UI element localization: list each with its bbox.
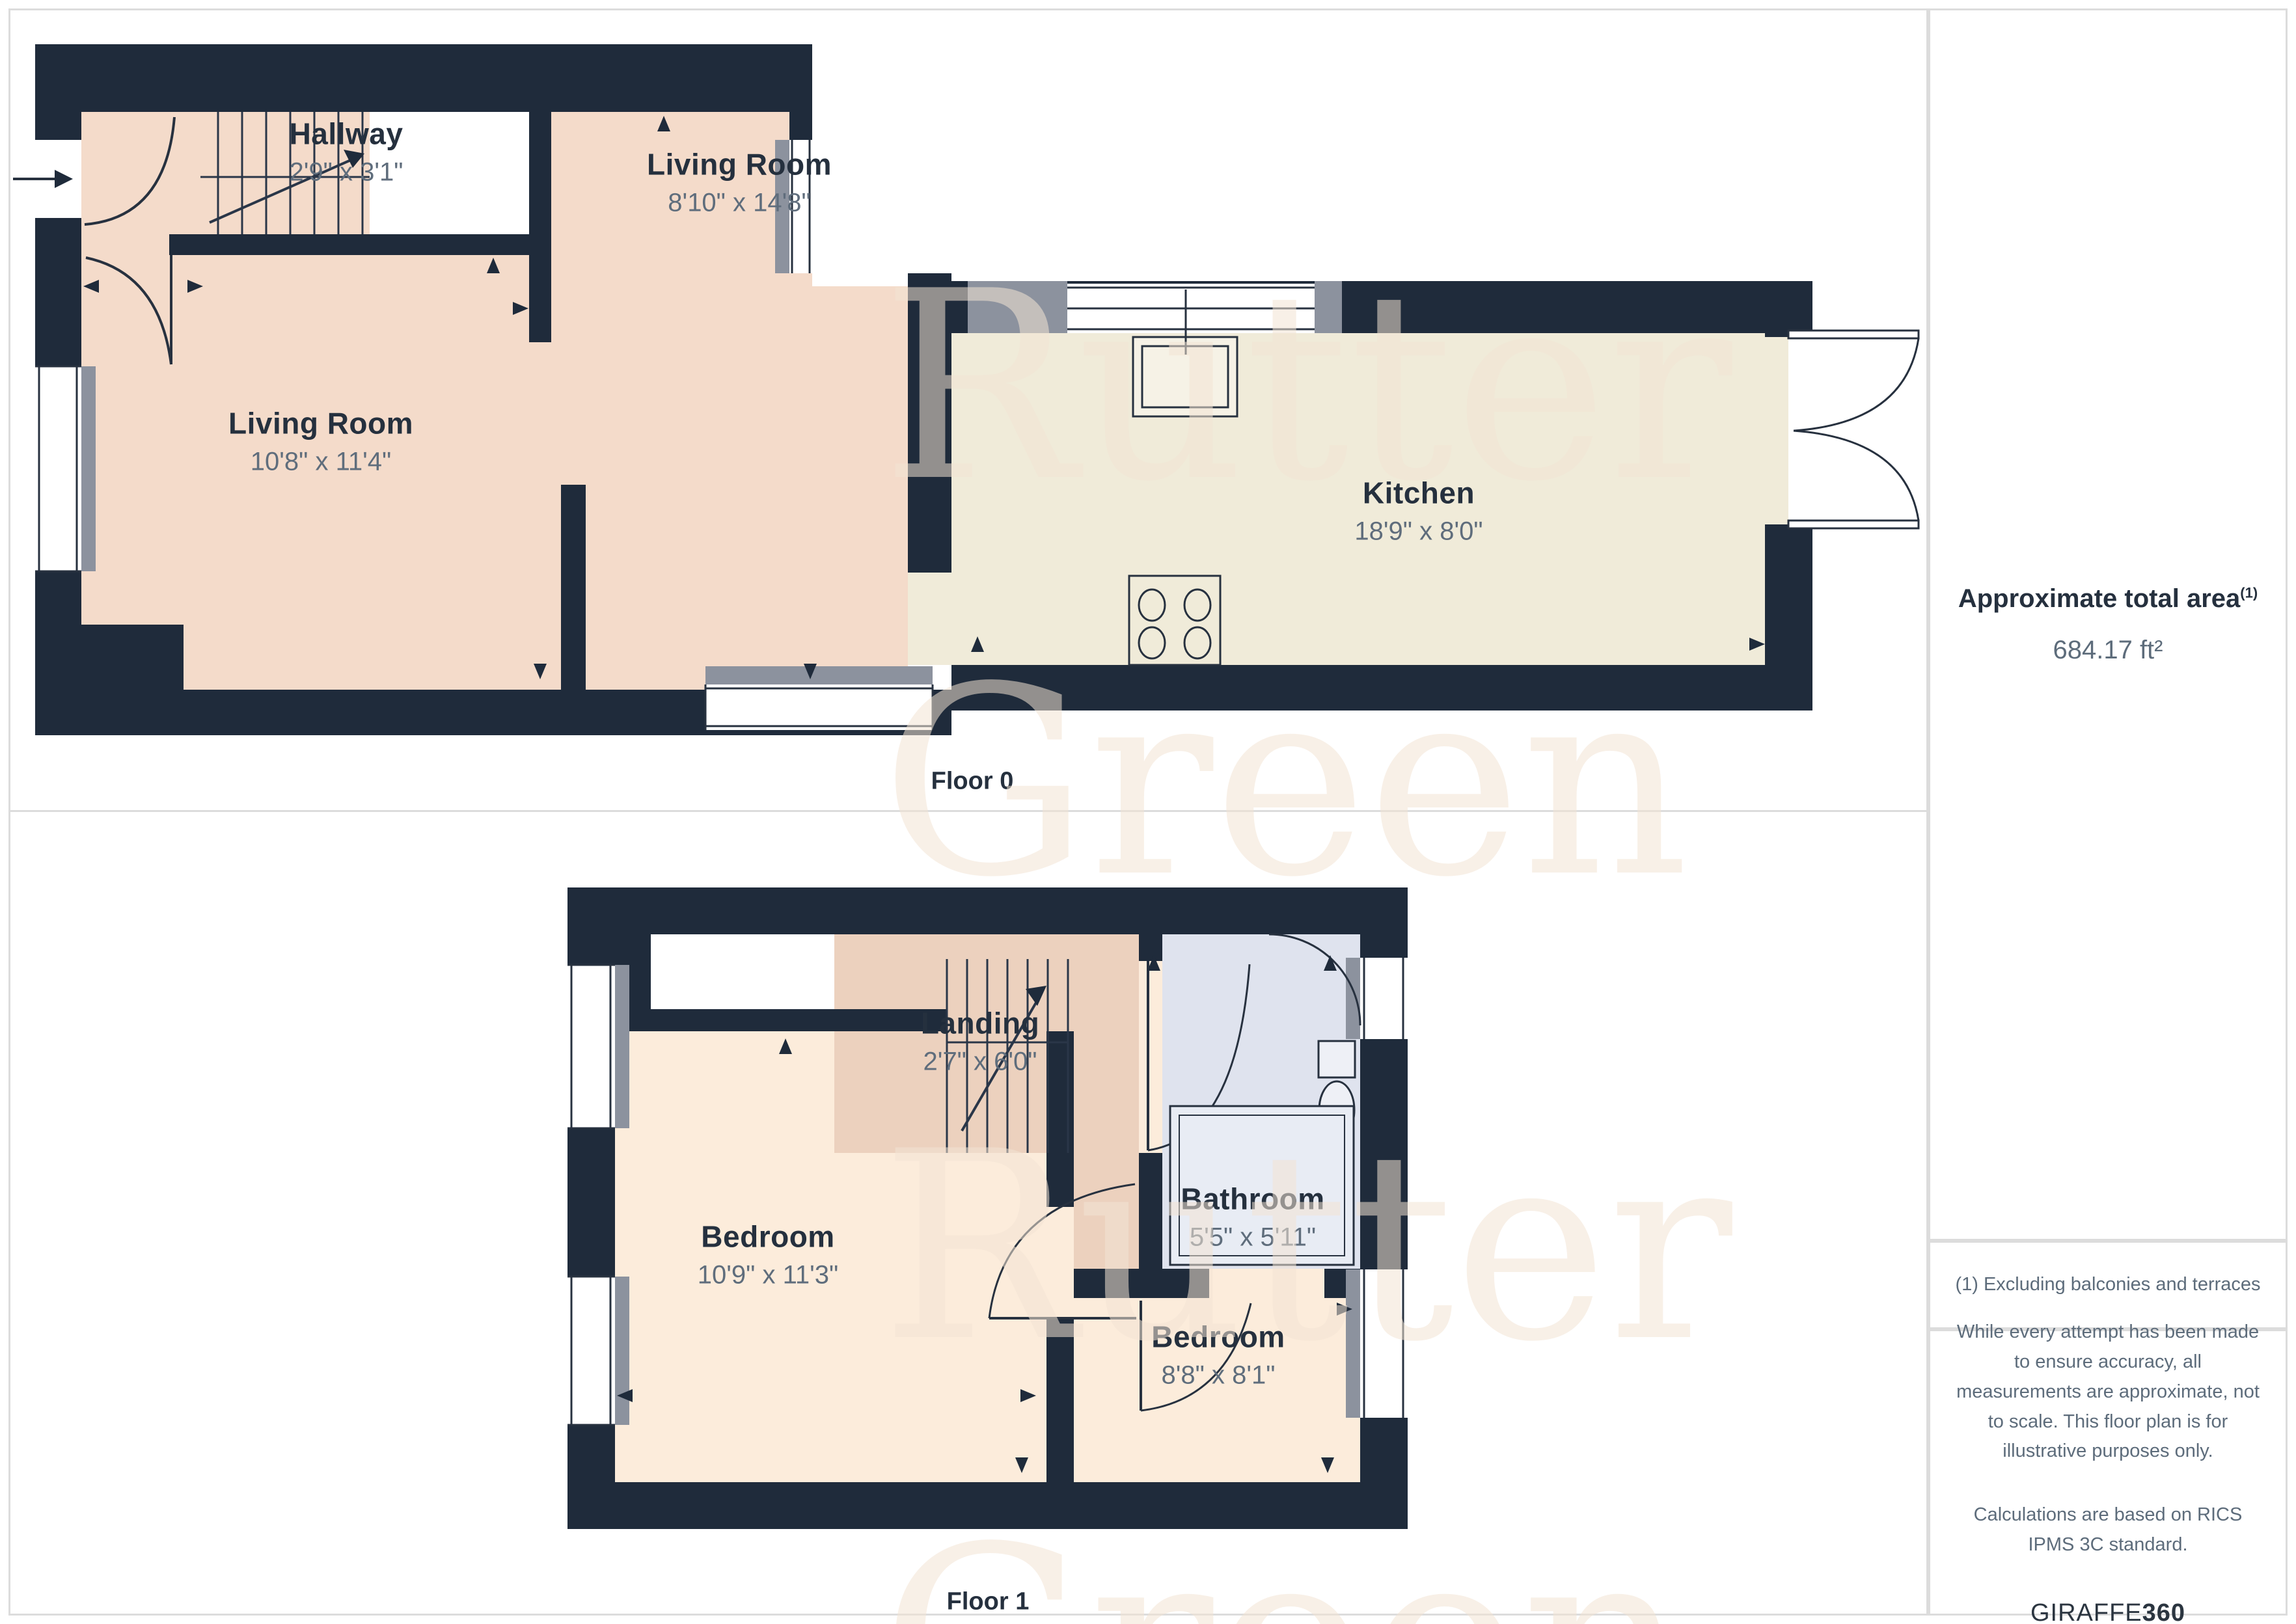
floor1-caption: Floor 1 — [947, 1588, 1030, 1616]
room-dims: 8'10" x 14'8" — [647, 189, 832, 218]
room-label-landing: Landing 2'7" x 6'0" — [921, 1006, 1039, 1077]
room-dims: 10'9" x 11'3" — [698, 1261, 838, 1290]
room-dims: 10'8" x 11'4" — [228, 448, 413, 477]
sidebar-total-area-section: Approximate total area(1) 684.17 ft² — [1928, 8, 2288, 1241]
total-area-footnote-marker: (1) — [2240, 585, 2258, 601]
room-name: Living Room — [228, 406, 413, 441]
giraffe360-logo: GIRAFFE360 — [2030, 1599, 2185, 1624]
room-name: Hallway — [290, 116, 403, 152]
room-dims: 18'9" x 8'0" — [1354, 517, 1483, 547]
floor1-plan — [10, 812, 1926, 1614]
room-name: Bedroom — [1151, 1319, 1285, 1355]
giraffe360-logo-name: GIRAFFE — [2030, 1599, 2142, 1624]
room-label-kitchen: Kitchen 18'9" x 8'0" — [1354, 476, 1483, 547]
room-name: Landing — [921, 1006, 1039, 1041]
room-dims: 8'8" x 8'1" — [1151, 1361, 1285, 1390]
sidebar-disclaimer-section: While every attempt has been made to ens… — [1928, 1329, 2288, 1616]
sidebar-footnote-section: (1) Excluding balconies and terraces — [1928, 1241, 2288, 1329]
disclaimer-text: While every attempt has been made to ens… — [1952, 1318, 2264, 1467]
room-dims: 2'9" x 3'1" — [290, 158, 403, 187]
room-label-bedroom-1: Bedroom 10'9" x 11'3" — [698, 1219, 838, 1290]
total-area-value: 684.17 ft² — [2053, 636, 2163, 665]
room-label-bathroom: Bathroom 5'5" x 5'11" — [1181, 1182, 1324, 1252]
floor0-caption: Floor 0 — [931, 768, 1014, 796]
total-area-title: Approximate total area(1) — [1958, 584, 2258, 614]
room-name: Kitchen — [1354, 476, 1483, 511]
room-label-living-room-1: Living Room 10'8" x 11'4" — [228, 406, 413, 477]
french-doors — [1788, 331, 1919, 528]
footnote-text: (1) Excluding balconies and terraces — [1952, 1270, 2264, 1300]
room-name: Bathroom — [1181, 1182, 1324, 1217]
room-label-bedroom-2: Bedroom 8'8" x 8'1" — [1151, 1319, 1285, 1390]
giraffe360-logo-suffix: 360 — [2142, 1599, 2185, 1624]
room-dims: 2'7" x 6'0" — [921, 1048, 1039, 1077]
room-dims: 5'5" x 5'11" — [1181, 1223, 1324, 1252]
room-name: Bedroom — [698, 1219, 838, 1254]
total-area-title-text: Approximate total area — [1958, 584, 2240, 613]
room-label-living-room-2: Living Room 8'10" x 14'8" — [647, 147, 832, 218]
room-label-hallway: Hallway 2'9" x 3'1" — [290, 116, 403, 187]
standard-text: Calculations are based on RICS IPMS 3C s… — [1952, 1500, 2264, 1560]
room-name: Living Room — [647, 147, 832, 182]
floorplan-page: Hallway 2'9" x 3'1" Living Room 10'8" x … — [0, 0, 2296, 1624]
